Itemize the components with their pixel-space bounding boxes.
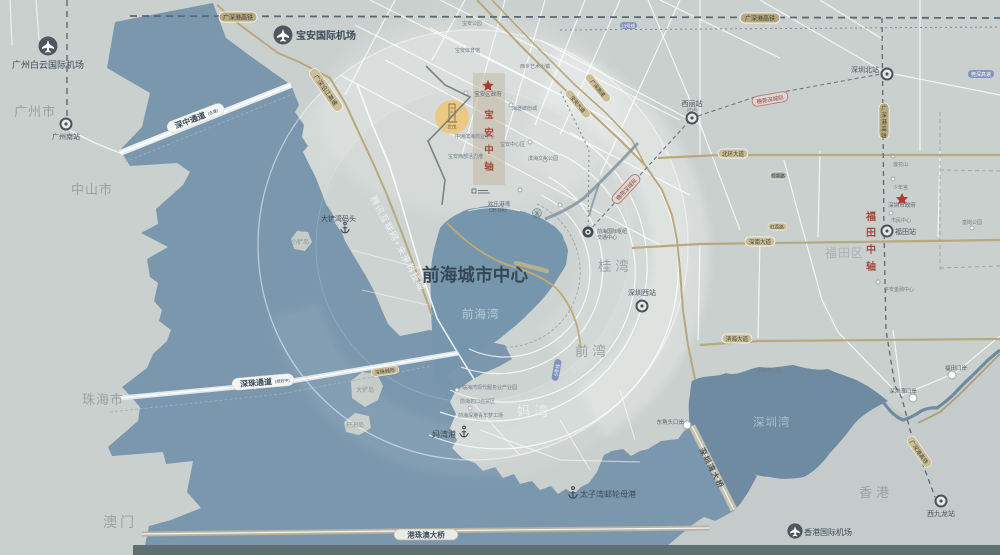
- svg-text:红荔路: 红荔路: [770, 224, 784, 231]
- svg-text:珠海市: 珠海市: [82, 392, 124, 407]
- svg-text:宝安公园: 宝安公园: [462, 20, 482, 27]
- svg-text:滨海文化公园: 滨海文化公园: [528, 155, 558, 162]
- svg-text:孖洲岛: 孖洲岛: [346, 421, 364, 429]
- svg-text:广州南站: 广州南站: [52, 132, 80, 141]
- svg-text:宝安区政府: 宝安区政府: [474, 90, 502, 98]
- svg-text:高: 高: [881, 125, 887, 133]
- svg-text:13号线: 13号线: [621, 23, 636, 30]
- svg-text:广州白云国际机场: 广州白云国际机场: [12, 59, 84, 70]
- svg-text:福: 福: [865, 210, 876, 223]
- svg-text:前海蛇口自贸区: 前海蛇口自贸区: [460, 398, 495, 405]
- svg-text:前湾: 前湾: [575, 343, 610, 359]
- svg-text:中洲滨海商业中心: 中洲滨海商业中心: [455, 133, 495, 140]
- svg-text:深圳市政府: 深圳市政府: [888, 201, 916, 209]
- svg-text:中: 中: [484, 144, 494, 156]
- svg-text:市民中心: 市民中心: [891, 217, 911, 224]
- svg-text:少年宫: 少年宫: [893, 184, 908, 191]
- svg-text:港珠澳大桥: 港珠澳大桥: [407, 530, 445, 540]
- svg-text:欢乐港湾: 欢乐港湾: [488, 200, 511, 208]
- svg-text:福田区: 福田区: [825, 245, 864, 260]
- svg-text:澳门: 澳门: [103, 514, 137, 530]
- svg-text:海雅缤纷城: 海雅缤纷城: [512, 105, 537, 112]
- svg-text:侨香路: 侨香路: [771, 173, 785, 180]
- svg-text:轴: 轴: [866, 260, 876, 273]
- svg-text:宝安中心区: 宝安中心区: [500, 141, 525, 148]
- svg-text:铁: 铁: [881, 132, 887, 140]
- svg-text:交通中心: 交通中心: [597, 234, 617, 241]
- svg-text:港: 港: [881, 118, 887, 126]
- svg-text:前海深港青年梦工场: 前海深港青年梦工场: [458, 412, 503, 419]
- svg-text:北环大道: 北环大道: [722, 150, 745, 158]
- svg-text:(在建): (在建): [687, 106, 698, 112]
- svg-text:宝安体育馆: 宝安体育馆: [455, 47, 480, 54]
- svg-text:宝: 宝: [484, 109, 494, 121]
- svg-text:深圳湾: 深圳湾: [753, 415, 791, 429]
- svg-text:东角头口岸: 东角头口岸: [656, 418, 684, 426]
- svg-text:宝安西部活力港: 宝安西部活力港: [448, 153, 483, 160]
- svg-text:桂湾: 桂湾: [598, 258, 633, 274]
- svg-text:深圳湾公园: 深圳湾公园: [756, 367, 781, 374]
- svg-text:大铲湾码头: 大铲湾码头: [321, 214, 356, 223]
- svg-text:深圳北站: 深圳北站: [851, 65, 879, 74]
- svg-text:深: 深: [881, 111, 887, 119]
- svg-text:田: 田: [866, 227, 876, 239]
- svg-text:小铲岛: 小铲岛: [291, 238, 309, 246]
- svg-text:皇岗公园: 皇岗公园: [962, 219, 982, 226]
- svg-text:前海城市中心: 前海城市中心: [422, 265, 528, 285]
- svg-text:福田口岸: 福田口岸: [945, 364, 968, 372]
- svg-text:临海湾现代服务业产业园: 临海湾现代服务业产业园: [462, 384, 517, 391]
- svg-text:西乡艺术小镇: 西乡艺术小镇: [520, 63, 550, 70]
- svg-text:莲花山: 莲花山: [893, 161, 908, 168]
- svg-text:广深港高铁: 广深港高铁: [745, 15, 775, 23]
- svg-text:前海国际枢纽: 前海国际枢纽: [597, 228, 627, 235]
- svg-text:滨海大道: 滨海大道: [726, 335, 749, 343]
- svg-text:平安金融中心: 平安金融中心: [884, 286, 914, 293]
- svg-text:中: 中: [866, 243, 876, 256]
- svg-text:深圳西站: 深圳西站: [628, 288, 656, 297]
- svg-text:大铲岛: 大铲岛: [356, 386, 374, 394]
- svg-text:广深港高铁: 广深港高铁: [223, 14, 253, 22]
- svg-text:中山市: 中山市: [71, 182, 113, 197]
- svg-text:宝安国际机场: 宝安国际机场: [296, 29, 356, 42]
- svg-text:香港: 香港: [859, 485, 893, 500]
- svg-text:妈湾: 妈湾: [517, 403, 552, 419]
- svg-text:深圳湾口岸: 深圳湾口岸: [889, 387, 917, 395]
- svg-text:莞深高速: 莞深高速: [971, 71, 991, 78]
- svg-text:太子湾邮轮母港: 太子湾邮轮母港: [580, 489, 636, 499]
- svg-text:·世茂·: ·世茂·: [446, 124, 458, 131]
- svg-text:香港国际机场: 香港国际机场: [804, 527, 852, 537]
- svg-text:广: 广: [881, 104, 887, 112]
- svg-text:轴: 轴: [484, 161, 494, 173]
- svg-text:广州市: 广州市: [14, 104, 56, 119]
- svg-text:前海湾: 前海湾: [462, 307, 500, 321]
- svg-text:西九龙站: 西九龙站: [927, 509, 955, 518]
- svg-text:福田站: 福田站: [895, 227, 916, 236]
- svg-text:妈湾港: 妈湾港: [432, 429, 456, 439]
- svg-text:OH BAY: OH BAY: [489, 208, 508, 214]
- svg-text:深南大道: 深南大道: [749, 238, 772, 246]
